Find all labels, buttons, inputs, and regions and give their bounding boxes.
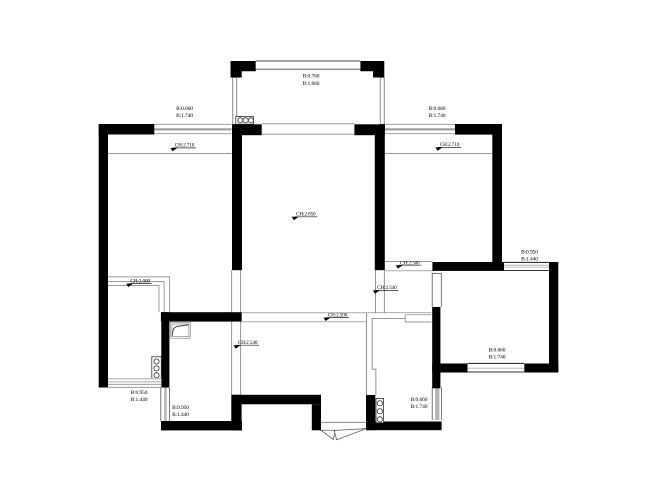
svg-text:B:1.740: B:1.740 [429,113,446,119]
svg-text:B:0.660: B:0.660 [176,106,193,112]
svg-text:B:0.660: B:0.660 [411,397,428,403]
svg-text:B:1.660: B:1.660 [303,81,320,87]
svg-text:B:0.660: B:0.660 [429,106,446,112]
svg-text:B:0.760: B:0.760 [303,74,320,80]
svg-text:B:1.440: B:1.440 [172,412,189,418]
svg-text:B:1.440: B:1.440 [131,397,148,403]
svg-text:B:0.950: B:0.950 [521,250,538,256]
svg-text:B:0.950: B:0.950 [172,405,189,411]
svg-text:B:1.740: B:1.740 [176,113,193,119]
svg-text:B:0.950: B:0.950 [131,390,148,396]
svg-text:B:1.440: B:1.440 [521,257,538,263]
svg-text:B:1.740: B:1.740 [411,404,428,410]
svg-text:B:0.660: B:0.660 [489,348,506,354]
svg-text:B:1.740: B:1.740 [489,355,506,361]
